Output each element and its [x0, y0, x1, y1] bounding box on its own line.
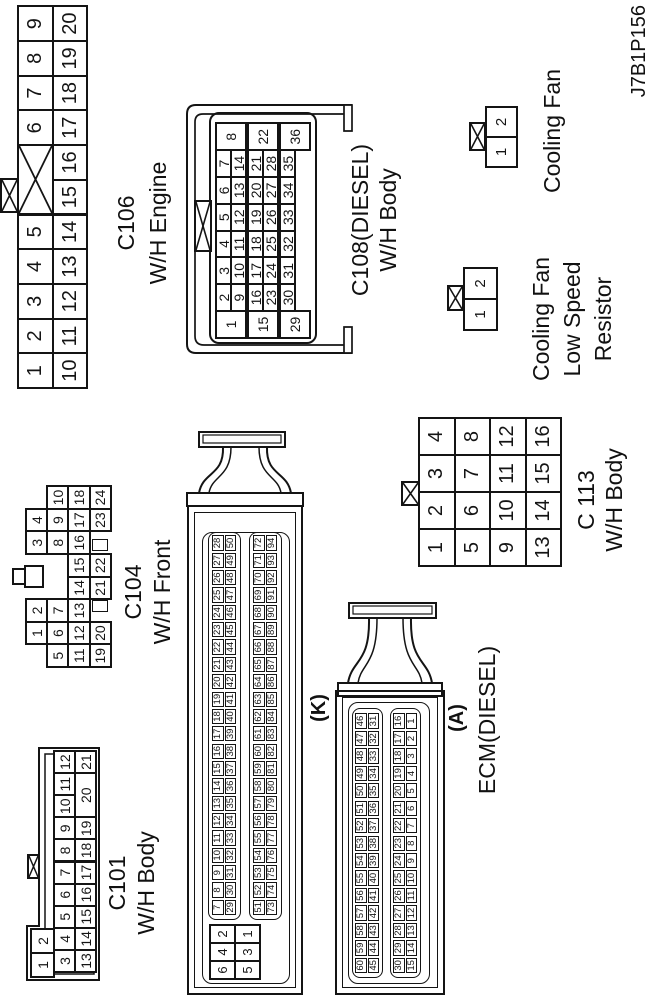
- pin-cell: 83: [266, 726, 278, 741]
- pin-cell: 8: [212, 882, 224, 897]
- c104-title: C104: [120, 512, 147, 672]
- pin-cell: 2: [17, 318, 54, 355]
- pin-cell: 60: [355, 958, 367, 973]
- pin-cell: 12: [53, 750, 76, 774]
- pin-cell: 25: [393, 870, 405, 885]
- pin-cell: 12: [212, 813, 224, 828]
- pin-cell: 34: [368, 766, 380, 781]
- pin-cell: 3: [17, 283, 54, 320]
- pin-cell: 10: [46, 485, 69, 510]
- pin-cell: 89: [266, 622, 278, 637]
- pin-cell: 4: [209, 942, 236, 962]
- pin-cell: 56: [355, 888, 367, 903]
- pin-cell: 33: [279, 203, 296, 232]
- pin-cell: 57: [355, 905, 367, 920]
- pin-cell: 10: [212, 848, 224, 863]
- diagram-canvas: C101 W/H Body C104 W/H Front C106 W/H En…: [0, 0, 654, 1000]
- pin-cell: 19: [89, 643, 112, 668]
- pin-cell: 76: [266, 848, 278, 863]
- pin-cell: 9: [53, 816, 76, 840]
- pin-cell: 65: [253, 657, 265, 672]
- pin-cell: 92: [266, 570, 278, 585]
- pin-cell: 80: [266, 778, 278, 793]
- pin-cell: 4: [25, 508, 48, 533]
- cooling-fan-resistor-label-3: Resistor: [590, 239, 617, 399]
- pin-cell: 30: [279, 283, 296, 312]
- pin-cell: 79: [266, 796, 278, 811]
- pin-cell: 50: [225, 535, 237, 550]
- pin-cell: 2: [463, 267, 498, 300]
- c108-shell-stub-left: [344, 327, 352, 353]
- ecm-a-bolt-icon: [338, 603, 442, 696]
- manual-page: C101 W/H Body C104 W/H Front C106 W/H En…: [0, 0, 654, 1000]
- pin-cell: 18: [74, 838, 97, 862]
- pin-cell: 33: [225, 830, 237, 845]
- pin-cell: 13: [52, 248, 88, 285]
- pin-cell: 88: [266, 639, 278, 654]
- ecm-k-label: (K): [306, 678, 333, 738]
- key-slot: [92, 539, 108, 551]
- pin-cell: 52: [253, 882, 265, 897]
- pin-cell: 15: [74, 905, 97, 929]
- pin-cell: 7: [53, 861, 76, 885]
- pin-cell: 12: [489, 417, 527, 456]
- pin-cell: 17: [52, 109, 88, 146]
- pin-cell: 73: [266, 900, 278, 915]
- pin-cell: 2: [25, 598, 48, 623]
- pin-cell: 86: [266, 674, 278, 689]
- cooling-fan-resistor-label-1: Cooling Fan: [528, 239, 555, 399]
- pin-cell: 38: [368, 836, 380, 851]
- c104-latch-icon: [24, 565, 44, 588]
- pin-cell: 63: [253, 692, 265, 707]
- pin-cell: 39: [225, 726, 237, 741]
- pin-cell: 84: [266, 709, 278, 724]
- pin-cell: 9: [212, 865, 224, 880]
- pin-cell: 14: [52, 214, 88, 251]
- pin-cell: 67: [253, 622, 265, 637]
- pin-cell: 37: [225, 761, 237, 776]
- pin-cell: 12: [230, 203, 247, 232]
- pin-cell: 6: [209, 960, 236, 980]
- pin-cell: 1: [17, 352, 54, 389]
- pin-cell: 21: [212, 657, 224, 672]
- ecm-k-bolt-icon: [187, 432, 303, 506]
- pin-cell: 75: [266, 865, 278, 880]
- pin-cell: 94: [266, 535, 278, 550]
- pin-cell: 58: [253, 778, 265, 793]
- pin-cell: 70: [253, 570, 265, 585]
- pin-cell: 49: [225, 553, 237, 568]
- c106-latch-icon: [0, 178, 19, 213]
- pin-cell: 15: [212, 761, 224, 776]
- pin-cell: 9: [230, 283, 247, 312]
- pin-cell: 1: [234, 924, 261, 944]
- pin-cell: 58: [355, 923, 367, 938]
- pin-cell: 32: [225, 848, 237, 863]
- pin-cell: 5: [234, 960, 261, 980]
- pin-cell: 34: [279, 176, 296, 205]
- pin-cell: 15: [406, 958, 418, 973]
- pin-cell: 60: [253, 744, 265, 759]
- pin-cell: 16: [525, 417, 563, 456]
- pin-cell: 10: [230, 256, 247, 285]
- c101-subtitle: W/H Body: [133, 803, 160, 963]
- pin-cell: 5: [406, 783, 418, 798]
- pin-cell: 93: [266, 553, 278, 568]
- pin-cell: 36: [225, 778, 237, 793]
- pin-cell: 56: [253, 813, 265, 828]
- pin-cell: 2: [485, 106, 518, 138]
- pin-cell: 42: [368, 905, 380, 920]
- pin-cell: 11: [406, 888, 418, 903]
- pin-cell: 17: [67, 508, 90, 533]
- pin-cell: 44: [225, 639, 237, 654]
- pin-cell: 40: [368, 870, 380, 885]
- pin-cell: 20: [212, 674, 224, 689]
- pin-cell: 21: [393, 801, 405, 816]
- pin-cell: 4: [53, 927, 76, 951]
- pin-cell: 24: [212, 605, 224, 620]
- pin-cell: 14: [67, 576, 90, 601]
- pin-cell: 4: [406, 766, 418, 781]
- pin-cell: 18: [52, 75, 88, 112]
- pin-cell: 61: [253, 726, 265, 741]
- pin-cell: 8: [406, 836, 418, 851]
- pin-cell: 6: [406, 801, 418, 816]
- pin-cell: 43: [368, 923, 380, 938]
- pin-cell: 5: [17, 214, 54, 251]
- pin-cell: 43: [225, 657, 237, 672]
- pin-cell: 7: [454, 454, 492, 493]
- pin-cell: 27: [212, 553, 224, 568]
- pin-cell: 51: [355, 801, 367, 816]
- pin-cell: 20: [393, 783, 405, 798]
- pin-cell: 1: [418, 528, 456, 567]
- pin-cell: 32: [279, 230, 296, 259]
- pin-cell: 35: [279, 149, 296, 178]
- pin-cell: 29: [393, 940, 405, 955]
- pin-cell: 23: [393, 836, 405, 851]
- pin-cell: 23: [89, 508, 112, 533]
- pin-cell: 78: [266, 813, 278, 828]
- pin-cell: 69: [253, 587, 265, 602]
- pin-cell: 2: [209, 924, 236, 944]
- pin-cell: 35: [225, 796, 237, 811]
- pin-cell: 13: [67, 598, 90, 623]
- pin-cell: 53: [355, 836, 367, 851]
- pin-cell: 15: [525, 454, 563, 493]
- pin-cell: 27: [262, 176, 279, 205]
- ecm-a-label: (A): [444, 688, 471, 748]
- pin-cell: 9: [17, 5, 54, 42]
- pin-cell: 28: [393, 923, 405, 938]
- cooling-fan-resistor-label-2: Low Speed: [559, 239, 586, 399]
- pin-cell: 30: [393, 958, 405, 973]
- pin-cell: 20: [89, 621, 112, 646]
- pin-cell: 62: [253, 709, 265, 724]
- cooling-fan-label: Cooling Fan: [539, 51, 566, 211]
- pin-cell: 14: [230, 149, 247, 178]
- pin-cell: 48: [355, 748, 367, 763]
- pin-cell: 27: [393, 905, 405, 920]
- pin-cell: 14: [212, 778, 224, 793]
- pin-cell: 11: [53, 772, 76, 796]
- pin-cell: 11: [212, 830, 224, 845]
- pin-cell: 41: [368, 888, 380, 903]
- c106-title: C106: [113, 123, 140, 323]
- pin-cell: 24: [262, 256, 279, 285]
- pin-cell: 6: [17, 109, 54, 146]
- pin-cell: 1: [463, 298, 498, 331]
- pin-cell: 77: [266, 830, 278, 845]
- pin-cell: 7: [46, 598, 69, 623]
- pin-cell: 51: [253, 900, 265, 915]
- pin-cell: 9: [46, 508, 69, 533]
- pin-cell: 6: [46, 621, 69, 646]
- c101-title: C101: [104, 803, 131, 963]
- c113-subtitle: W/H Body: [601, 420, 628, 580]
- pin-cell: 15: [67, 553, 90, 578]
- c108-title: C108(DIESEL): [347, 110, 374, 330]
- pin-cell: 17: [74, 861, 97, 885]
- pin-cell: 20: [74, 772, 97, 818]
- pin-cell: 12: [406, 905, 418, 920]
- pin-cell: 1: [406, 713, 418, 728]
- pin-cell: 82: [266, 744, 278, 759]
- pin-cell: 23: [262, 283, 279, 312]
- pin-cell: 55: [355, 870, 367, 885]
- cooling-fan-resistor-latch-icon: [447, 285, 464, 311]
- pin-cell: 59: [253, 761, 265, 776]
- pin-cell: 11: [230, 230, 247, 259]
- pin-cell: 71: [253, 553, 265, 568]
- pin-cell: 31: [225, 865, 237, 880]
- pin-cell: 54: [355, 853, 367, 868]
- pin-cell: 2: [30, 928, 55, 954]
- pin-cell: 15: [52, 179, 88, 216]
- pin-cell: 26: [393, 888, 405, 903]
- pin-cell: 16: [74, 883, 97, 907]
- pin-cell: 29: [225, 900, 237, 915]
- pin-cell: 8: [53, 838, 76, 862]
- pin-cell: 17: [393, 731, 405, 746]
- pin-cell: 13: [230, 176, 247, 205]
- pin-cell: 1: [30, 952, 55, 978]
- pin-cell: 28: [212, 535, 224, 550]
- pin-cell: 41: [225, 692, 237, 707]
- pin-cell: 18: [67, 485, 90, 510]
- pin-cell: 20: [52, 5, 88, 42]
- pin-cell: 10: [406, 870, 418, 885]
- pin-cell: 4: [418, 417, 456, 456]
- pin-cell: 68: [253, 605, 265, 620]
- pin-cell: 35: [368, 783, 380, 798]
- pin-cell: 25: [262, 230, 279, 259]
- pin-cell: 3: [53, 949, 76, 973]
- pin-cell: 22: [247, 122, 279, 151]
- pin-cell: 10: [52, 352, 88, 389]
- pin-cell: 36: [279, 122, 311, 151]
- pin-cell: 1: [25, 621, 48, 646]
- pin-cell: 9: [489, 528, 527, 567]
- pin-cell: 3: [25, 530, 48, 555]
- pin-cell: 28: [262, 149, 279, 178]
- c108-latch-icon: [194, 200, 212, 252]
- pin-cell: 24: [89, 485, 112, 510]
- cooling-fan-latch-icon: [469, 122, 486, 151]
- pin-cell: 16: [52, 144, 88, 181]
- pin-cell: 11: [67, 643, 90, 668]
- c106-subtitle: W/H Engine: [145, 123, 172, 323]
- pin-cell: 11: [489, 454, 527, 493]
- pin-cell: 14: [406, 940, 418, 955]
- pin-cell: 91: [266, 587, 278, 602]
- c108-subtitle: W/H Body: [375, 110, 402, 330]
- pin-cell: 85: [266, 692, 278, 707]
- pin-cell: 64: [253, 674, 265, 689]
- pin-cell: 26: [262, 203, 279, 232]
- pin-cell: 40: [225, 709, 237, 724]
- page-code: J7B1P156: [626, 5, 653, 180]
- pin-cell: 13: [525, 528, 563, 567]
- pin-cell: 15: [247, 310, 279, 339]
- pin-cell: 4: [17, 248, 54, 285]
- pin-cell: 3: [234, 942, 261, 962]
- pin-cell: 19: [212, 692, 224, 707]
- pin-cell: 59: [355, 940, 367, 955]
- pin-cell: 29: [279, 310, 311, 339]
- pin-cell: 31: [279, 256, 296, 285]
- pin-cell: 18: [393, 748, 405, 763]
- pin-cell: 5: [454, 528, 492, 567]
- pin-cell: 8: [17, 40, 54, 77]
- key-slot: [92, 600, 108, 612]
- pin-cell: 7: [17, 75, 54, 112]
- pin-cell: 8: [454, 417, 492, 456]
- pin-cell: 81: [266, 761, 278, 776]
- pin-cell: 52: [355, 818, 367, 833]
- pin-cell: 5: [46, 643, 69, 668]
- pin-cell: 12: [52, 283, 88, 320]
- pin-cell: 3: [406, 748, 418, 763]
- pin-cell: 32: [368, 731, 380, 746]
- pin-cell: 33: [368, 748, 380, 763]
- pin-cell: 14: [525, 491, 563, 530]
- pin-cell: 50: [355, 783, 367, 798]
- pin-cell: 2: [406, 731, 418, 746]
- pin-cell: 19: [52, 40, 88, 77]
- pin-cell: 37: [368, 818, 380, 833]
- pin-cell: 19: [393, 766, 405, 781]
- pin-cell: 5: [53, 905, 76, 929]
- pin-cell: 11: [52, 318, 88, 355]
- pin-cell: 55: [253, 830, 265, 845]
- pin-cell: 18: [212, 709, 224, 724]
- pin-cell: 47: [225, 587, 237, 602]
- pin-cell: 16: [67, 530, 90, 555]
- pin-cell: 22: [212, 639, 224, 654]
- pin-cell: 25: [212, 587, 224, 602]
- pin-cell: 38: [225, 744, 237, 759]
- pin-cell: 45: [225, 622, 237, 637]
- pin-cell: 8: [46, 530, 69, 555]
- pin-cell: 72: [253, 535, 265, 550]
- pin-cell: 13: [74, 949, 97, 973]
- pin-cell: 10: [489, 491, 527, 530]
- pin-cell: 1: [485, 136, 518, 168]
- pin-cell: 1: [215, 310, 247, 339]
- pin-cell: 54: [253, 848, 265, 863]
- pin-cell: 14: [74, 927, 97, 951]
- pin-cell: 46: [225, 605, 237, 620]
- pin-cell: 7: [212, 900, 224, 915]
- pin-cell: 17: [212, 726, 224, 741]
- c101-latch-icon: [27, 854, 40, 879]
- pin-cell: 49: [355, 766, 367, 781]
- pin-cell: 19: [74, 816, 97, 840]
- ecm-title: ECM(DIESEL): [474, 620, 501, 820]
- c113-latch-icon: [401, 481, 420, 506]
- pin-cell: 3: [418, 454, 456, 493]
- pin-cell: 16: [212, 744, 224, 759]
- c113-title: C 113: [573, 420, 600, 580]
- c104-subtitle: W/H Front: [149, 512, 176, 672]
- pin-cell: 87: [266, 657, 278, 672]
- pin-cell: 36: [368, 801, 380, 816]
- pin-cell: 16: [393, 713, 405, 728]
- pin-cell: 74: [266, 882, 278, 897]
- pin-cell: 2: [418, 491, 456, 530]
- pin-cell: 42: [225, 674, 237, 689]
- pin-cell: 48: [225, 570, 237, 585]
- pin-cell: 6: [454, 491, 492, 530]
- pin-cell: 34: [225, 813, 237, 828]
- pin-cell: 57: [253, 796, 265, 811]
- pin-cell: 26: [212, 570, 224, 585]
- pin-cell: 24: [393, 853, 405, 868]
- pin-cell: 13: [212, 796, 224, 811]
- pin-cell: 7: [406, 818, 418, 833]
- pin-cell: 66: [253, 639, 265, 654]
- pin-cell: 10: [53, 794, 76, 818]
- pin-cell: 21: [89, 576, 112, 601]
- pin-cell: 31: [368, 713, 380, 728]
- pin-cell: 46: [355, 713, 367, 728]
- pin-cell: 44: [368, 940, 380, 955]
- pin-cell: 45: [368, 958, 380, 973]
- pin-cell: 12: [67, 621, 90, 646]
- pin-cell: 21: [74, 750, 97, 774]
- pin-cell: 90: [266, 605, 278, 620]
- pin-cell: 9: [406, 853, 418, 868]
- pin-cell: 23: [212, 622, 224, 637]
- pin-cell: 8: [215, 122, 247, 151]
- pin-cell: 22: [89, 553, 112, 578]
- pin-cell: 53: [253, 865, 265, 880]
- c106-blank-cell: [17, 144, 54, 215]
- pin-cell: 13: [406, 923, 418, 938]
- pin-cell: 22: [393, 818, 405, 833]
- pin-cell: 39: [368, 853, 380, 868]
- pin-cell: 47: [355, 731, 367, 746]
- pin-cell: 6: [53, 883, 76, 907]
- pin-cell: 30: [225, 882, 237, 897]
